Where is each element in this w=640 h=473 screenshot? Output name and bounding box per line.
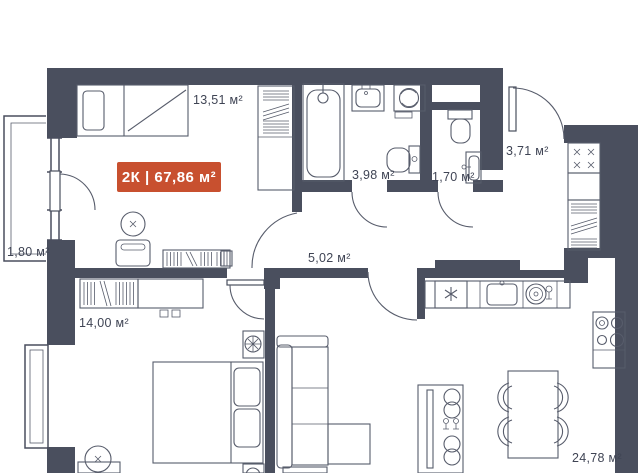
apartment-badge: 2К | 67,86 м² (117, 162, 221, 192)
entry-hall-area-label: 3,71 м² (506, 144, 549, 158)
entry-door-leaf (509, 87, 516, 131)
balcony-door-leaf (50, 171, 60, 211)
pillow-icon (234, 409, 260, 447)
wc-door-arc (438, 192, 473, 227)
wc-toilet-icon (448, 110, 472, 119)
pillow-icon (83, 91, 104, 130)
kitchen-living-area-label: 24,78 м² (572, 451, 622, 465)
double-bed-icon (153, 362, 263, 463)
hall-cabinet-icon (568, 173, 600, 200)
walls (47, 68, 638, 473)
balcony-outline (4, 116, 46, 261)
bathtub-icon (303, 84, 344, 181)
tv-icon (427, 390, 433, 468)
desk-icon (138, 279, 203, 308)
living-door-arc (368, 272, 417, 320)
bedroom-2-door-arc (230, 285, 264, 319)
floor-plan: 13,51 м² 3,98 м² 1,70 м² 3,71 м² 5,02 м²… (0, 0, 640, 473)
bedroom-1-area-label: 13,51 м² (193, 93, 243, 107)
bedroom-2-window (25, 345, 48, 448)
kitchen-fixtures (425, 281, 625, 368)
floor-plan-page: 13,51 м² 3,98 м² 1,70 м² 3,71 м² 5,02 м²… (0, 0, 640, 473)
bathroom-fixtures (303, 84, 425, 181)
bedroom-2-furniture (78, 279, 263, 473)
balcony-door-arc (60, 174, 95, 210)
hall-wardrobe-icon (568, 200, 600, 250)
toilet-icon (409, 146, 420, 173)
living-room-furniture (243, 331, 568, 473)
shelving-icon (80, 279, 138, 308)
shoe-cabinet-icon (568, 143, 600, 173)
dishwasher-icon (526, 284, 546, 304)
corridor-area-label: 5,02 м² (308, 251, 351, 265)
stove-burner-icon (596, 317, 608, 329)
pillow-icon (234, 368, 260, 406)
bedroom-1-door-arc (252, 213, 297, 268)
kitchen-sink-icon (487, 284, 517, 305)
wc-area-label: 1,70 м² (432, 170, 475, 184)
wardrobe-icon (258, 86, 294, 190)
desk-icon (78, 462, 120, 473)
living-door-leaf (417, 271, 425, 319)
dining-table-icon (508, 371, 558, 458)
wall-niche (588, 258, 615, 283)
bedroom-2-area-label: 14,00 м² (79, 316, 129, 330)
balcony-area-label: 1,80 м² (7, 245, 50, 259)
entry-door-arc (513, 88, 564, 139)
kitchen-counter (425, 281, 570, 308)
bathroom-door-arc (352, 192, 387, 227)
badge-label: 2К | 67,86 м² (122, 169, 216, 186)
bedroom-2-door-leaf (227, 280, 264, 285)
wine-glass-icon (546, 286, 552, 292)
bathroom-area-label: 3,98 м² (352, 168, 395, 182)
